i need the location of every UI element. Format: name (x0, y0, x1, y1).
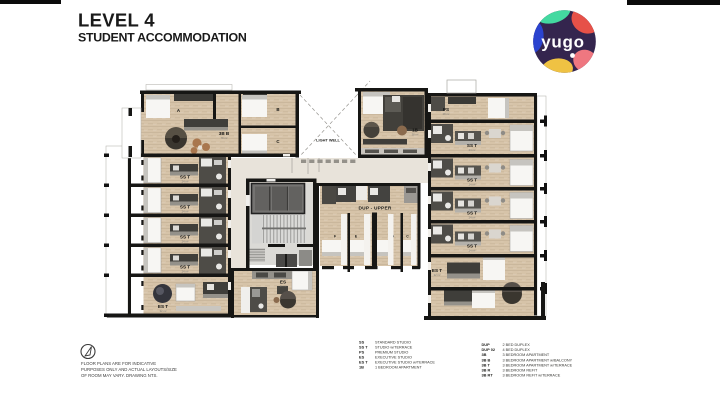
svg-text:3 BEDROOM APARTMENT: 3 BEDROOM APARTMENT (503, 353, 550, 357)
svg-text:OF ROOM MAY VARY. DRAWING NTS.: OF ROOM MAY VARY. DRAWING NTS. (81, 373, 158, 378)
svg-text:30 m²: 30 m² (280, 284, 287, 288)
svg-text:ES T: ES T (432, 268, 442, 273)
svg-text:24 m²: 24 m² (469, 183, 476, 187)
svg-text:yugo: yugo (541, 33, 584, 52)
svg-text:3 BEDROOM APARTMENT w/BALCONY: 3 BEDROOM APARTMENT w/BALCONY (503, 358, 573, 362)
svg-text:EXECUTIVE STUDIO w/TERRACE: EXECUTIVE STUDIO w/TERRACE (375, 361, 435, 365)
svg-text:LEVEL 4: LEVEL 4 (78, 10, 155, 31)
svg-text:38 m²: 38 m² (412, 133, 419, 137)
svg-text:PURPOSES ONLY AND ACTUAL LAYOU: PURPOSES ONLY AND ACTUAL LAYOUTS/SIZE (81, 367, 177, 372)
svg-text:STUDIO w/TERRACE: STUDIO w/TERRACE (375, 346, 413, 350)
svg-text:SS T: SS T (180, 175, 190, 180)
svg-text:ES T: ES T (158, 304, 168, 309)
svg-text:24 m²: 24 m² (182, 180, 189, 184)
svg-text:SS T: SS T (467, 211, 477, 216)
svg-text:STUDENT ACCOMMODATION: STUDENT ACCOMMODATION (78, 31, 247, 45)
svg-text:24 m²: 24 m² (469, 216, 476, 220)
svg-text:24 m²: 24 m² (182, 210, 189, 214)
svg-text:24 m²: 24 m² (182, 270, 189, 274)
svg-text:78 m²: 78 m² (221, 136, 228, 140)
svg-text:STANDARD STUDIO: STANDARD STUDIO (375, 341, 411, 345)
svg-text:1B: 1B (359, 365, 364, 370)
svg-text:EXECUTIVE STUDIO: EXECUTIVE STUDIO (375, 356, 412, 360)
svg-text:F: F (334, 235, 336, 239)
svg-text:LIGHT WELL: LIGHT WELL (316, 138, 340, 143)
svg-text:1 BEDROOM APARTMENT: 1 BEDROOM APARTMENT (375, 366, 422, 370)
svg-text:1B: 1B (412, 128, 419, 133)
svg-text:SS T: SS T (180, 205, 190, 210)
svg-text:SS T: SS T (467, 244, 477, 249)
svg-text:PREMIUM STUDIO: PREMIUM STUDIO (375, 351, 408, 355)
svg-text:SS T: SS T (467, 143, 477, 148)
svg-text:SS T: SS T (180, 265, 190, 270)
svg-text:3 BEDROOM REFIT: 3 BEDROOM REFIT (503, 369, 538, 373)
svg-text:28 m²: 28 m² (443, 112, 450, 116)
svg-text:PS: PS (443, 107, 449, 112)
svg-text:SS T: SS T (467, 178, 477, 183)
svg-text:3B RT: 3B RT (482, 373, 494, 378)
svg-text:32 m²: 32 m² (160, 309, 167, 313)
svg-text:3B B: 3B B (219, 131, 230, 136)
svg-text:DUP - UPPER: DUP - UPPER (358, 206, 391, 212)
svg-text:FLOOR PLANS ARE FOR INDICATIVE: FLOOR PLANS ARE FOR INDICATIVE (81, 361, 156, 366)
svg-text:24 m²: 24 m² (469, 249, 476, 253)
svg-text:4 BED DUPLEX: 4 BED DUPLEX (503, 348, 531, 352)
svg-text:3 BEDROOM REFIT w/TERRACE: 3 BEDROOM REFIT w/TERRACE (503, 374, 561, 378)
svg-text:ES: ES (280, 280, 286, 285)
svg-text:24 m²: 24 m² (182, 240, 189, 244)
svg-text:24 m²: 24 m² (469, 148, 476, 152)
svg-text:B: B (276, 107, 279, 112)
svg-text:3 BEDROOM APARTMENT w/TERRACE: 3 BEDROOM APARTMENT w/TERRACE (503, 363, 573, 367)
svg-text:SS T: SS T (180, 235, 190, 240)
svg-text:32 m²: 32 m² (434, 273, 441, 277)
svg-text:2 BED DUPLEX: 2 BED DUPLEX (503, 343, 531, 347)
